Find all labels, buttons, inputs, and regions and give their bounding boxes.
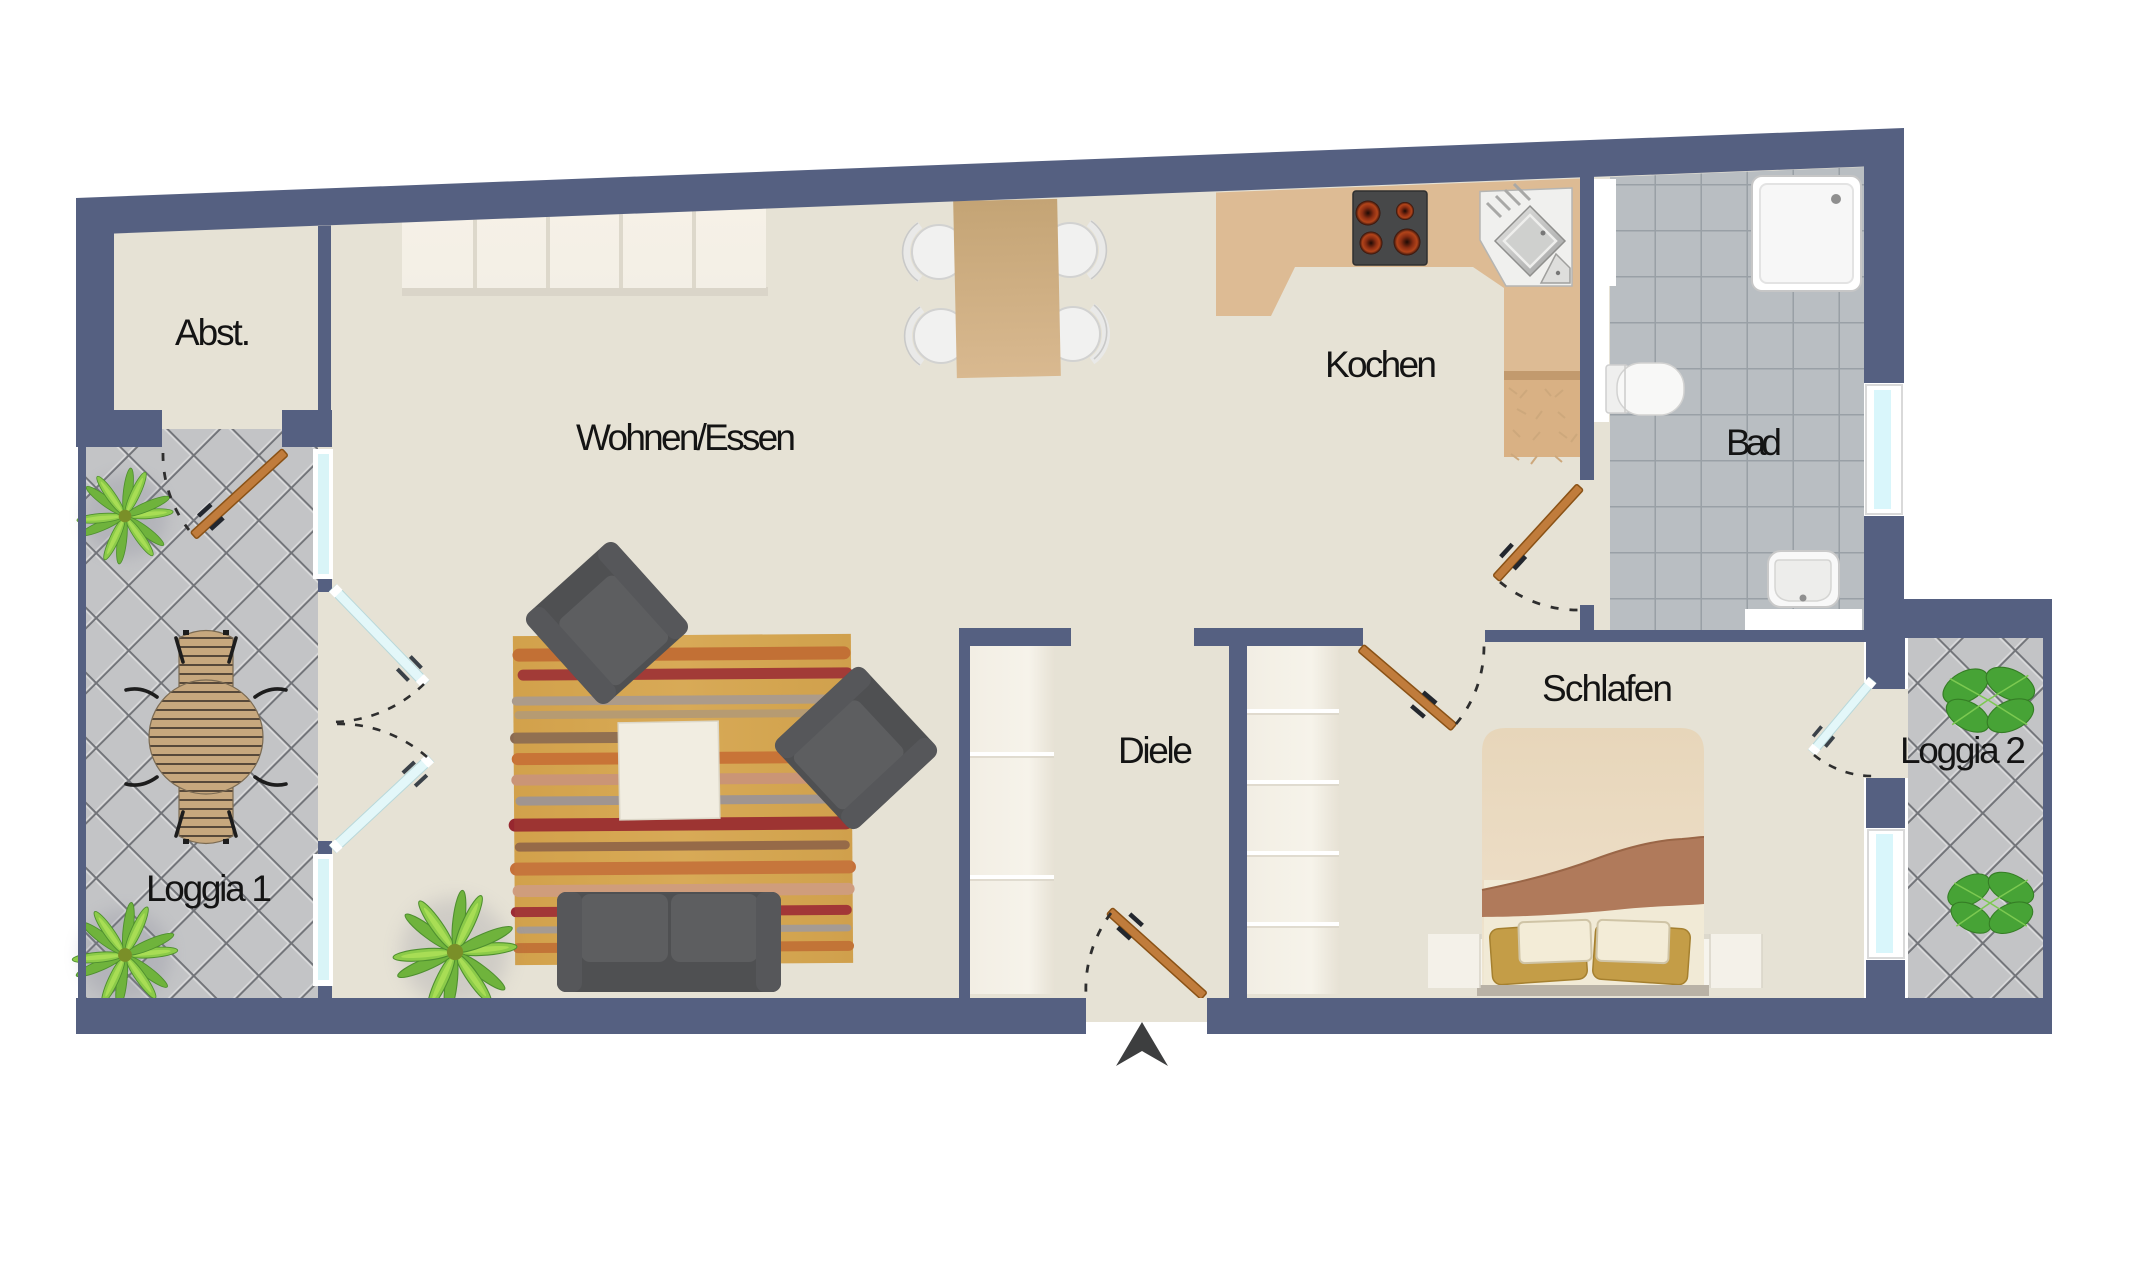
svg-text:Schlafen: Schlafen [1542,668,1673,709]
svg-text:Diele: Diele [1118,730,1193,771]
svg-text:Loggia 1: Loggia 1 [146,868,272,909]
svg-text:Loggia 2: Loggia 2 [1900,730,2026,771]
svg-text:Kochen: Kochen [1325,344,1437,385]
svg-text:Bad: Bad [1726,422,1782,463]
svg-text:Wohnen/Essen: Wohnen/Essen [576,417,796,458]
svg-text:Abst.: Abst. [175,312,251,353]
